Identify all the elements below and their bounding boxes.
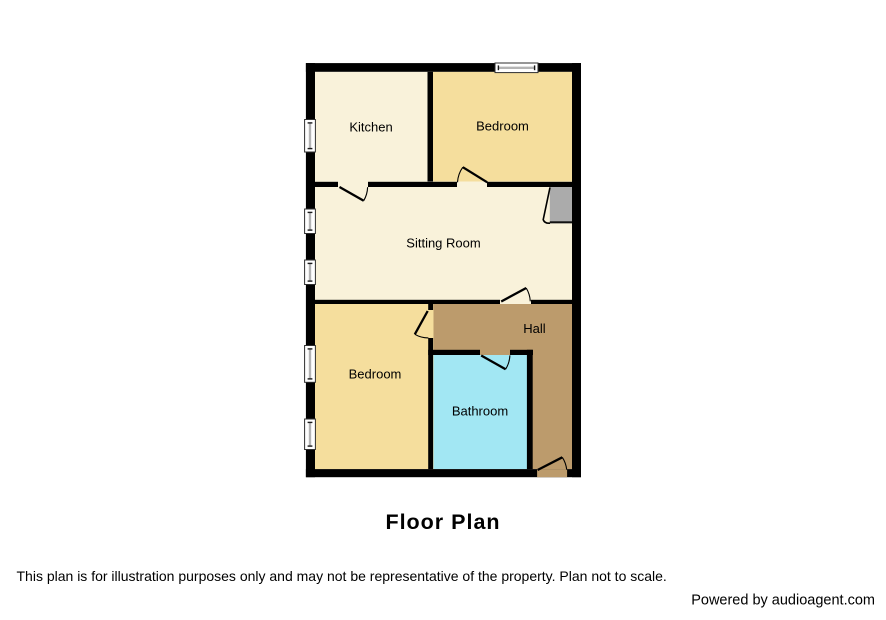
svg-text:Sitting Room: Sitting Room [406,236,480,251]
svg-text:Kitchen: Kitchen [349,120,392,135]
svg-text:Hall: Hall [523,321,546,336]
svg-text:This plan is for illustration: This plan is for illustration purposes o… [17,568,667,584]
svg-text:Floor Plan: Floor Plan [385,510,500,534]
svg-text:Bedroom: Bedroom [476,118,529,133]
svg-text:Bedroom: Bedroom [349,367,402,382]
svg-text:Bathroom: Bathroom [452,404,508,419]
svg-text:Powered by audioagent.com: Powered by audioagent.com [691,593,875,609]
